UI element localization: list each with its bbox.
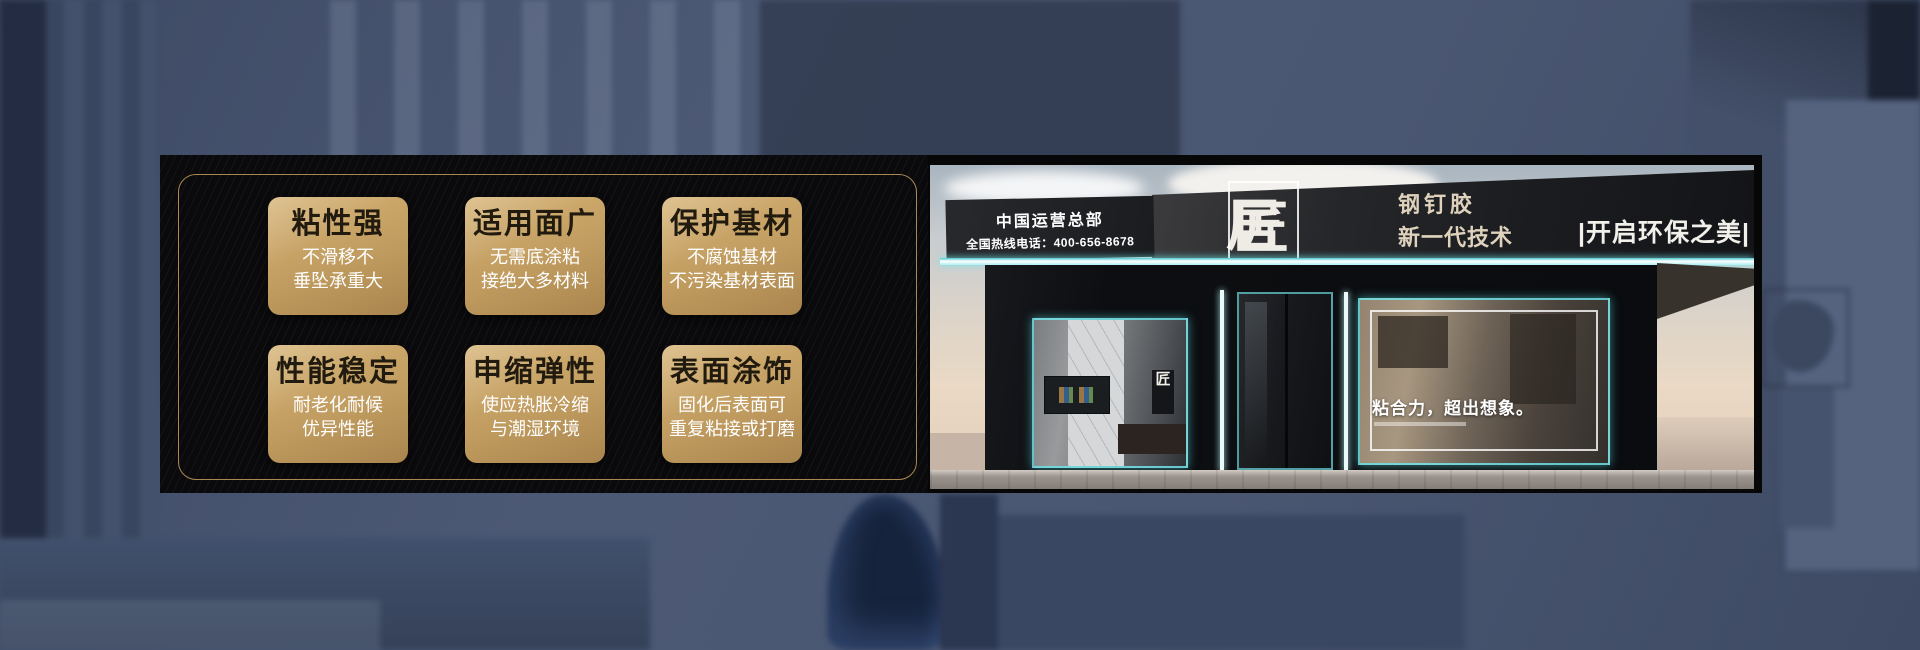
feature-title: 保护基材 (662, 210, 802, 239)
window-small-text-bar (1374, 422, 1466, 426)
feature-desc: 无需底涂粘 接绝大多材料 (465, 246, 605, 294)
feature-desc: 固化后表面可 重复粘接或打磨 (662, 394, 802, 442)
vertical-led-strip (1344, 292, 1348, 472)
vertical-led-strip (1220, 290, 1224, 472)
feature-title: 申缩弹性 (465, 358, 605, 387)
feature-card-elastic: 申缩弹性 使应热胀冷缩 与潮湿环境 (465, 345, 605, 463)
window-slogan-text: 粘合力，超出想象。 (1372, 394, 1534, 419)
operator-sign: 中国运营总部 全国热线电话：400-656-8678 (945, 196, 1154, 261)
screen-content (1059, 387, 1097, 403)
feature-card-protect-substrate: 保护基材 不腐蚀基材 不污染基材表面 (662, 197, 802, 315)
feature-desc: 耐老化耐候 优异性能 (268, 394, 408, 442)
background-floor-highlight (0, 600, 380, 650)
banner: 粘性强 不滑移不 垂坠承重大 适用面广 无需底涂粘 接绝大多材料 保护基材 不腐… (160, 155, 1762, 493)
glass-entry-door (1237, 292, 1333, 470)
background-light-streaks (330, 0, 770, 175)
feature-card-stable: 性能稳定 耐老化耐候 优异性能 (268, 345, 408, 463)
feature-desc: 不滑移不 垂坠承重大 (268, 246, 408, 294)
feature-title: 性能稳定 (268, 358, 408, 387)
feature-title: 粘性强 (268, 210, 408, 239)
feature-panel: 粘性强 不滑移不 垂坠承重大 适用面广 无需底涂粘 接绝大多材料 保护基材 不腐… (160, 155, 928, 493)
feature-card-wide-use: 适用面广 无需底涂粘 接绝大多材料 (465, 197, 605, 315)
eco-slogan-text: |开启环保之美| (1578, 213, 1750, 249)
feature-desc: 使应热胀冷缩 与潮湿环境 (465, 394, 605, 442)
operator-headquarters-text: 中国运营总部 (946, 205, 1154, 233)
tv-screen (1044, 376, 1110, 414)
feature-desc: 不腐蚀基材 不污染基材表面 (662, 246, 802, 294)
display-window-right: 粘合力，超出想象。 (1358, 298, 1610, 465)
door-divider (1285, 294, 1288, 468)
front-sidewalk (930, 470, 1754, 489)
display-window-left: 匠 (1032, 318, 1188, 468)
product-name-text: 钢钉胶 (1398, 187, 1476, 219)
feature-title: 适用面广 (465, 210, 605, 239)
interior-counter (1118, 424, 1186, 454)
technology-text: 新一代技术 (1398, 220, 1513, 252)
window-inner-led-frame (1370, 310, 1598, 451)
feature-title: 表面涂饰 (662, 358, 802, 387)
fascia-led-strip (940, 258, 1754, 265)
promo-banner-screenshot: 粘性强 不滑移不 垂坠承重大 适用面广 无需底涂粘 接绝大多材料 保护基材 不腐… (0, 0, 1920, 650)
background-cabinet-silhouette (955, 515, 1465, 650)
background-vase-shadow (940, 494, 998, 650)
storefront-photo: 中国运营总部 全国热线电话：400-656-8678 居美匠 钢钉胶 新一代技术… (930, 165, 1754, 489)
interior-logo-sign: 匠 (1152, 370, 1174, 414)
hotline-phone-text: 全国热线电话：400-656-8678 (946, 232, 1154, 253)
background-pedestal (1780, 388, 1834, 528)
background-vase (827, 494, 945, 650)
roof-overhang (1657, 263, 1754, 319)
door-reflection (1245, 302, 1267, 462)
feature-card-adhesion: 粘性强 不滑移不 垂坠承重大 (268, 197, 408, 315)
background-dark-band (760, 0, 1180, 160)
brand-boxed-char: 匠 (1228, 181, 1299, 266)
feature-card-paintable: 表面涂饰 固化后表面可 重复粘接或打磨 (662, 345, 802, 463)
